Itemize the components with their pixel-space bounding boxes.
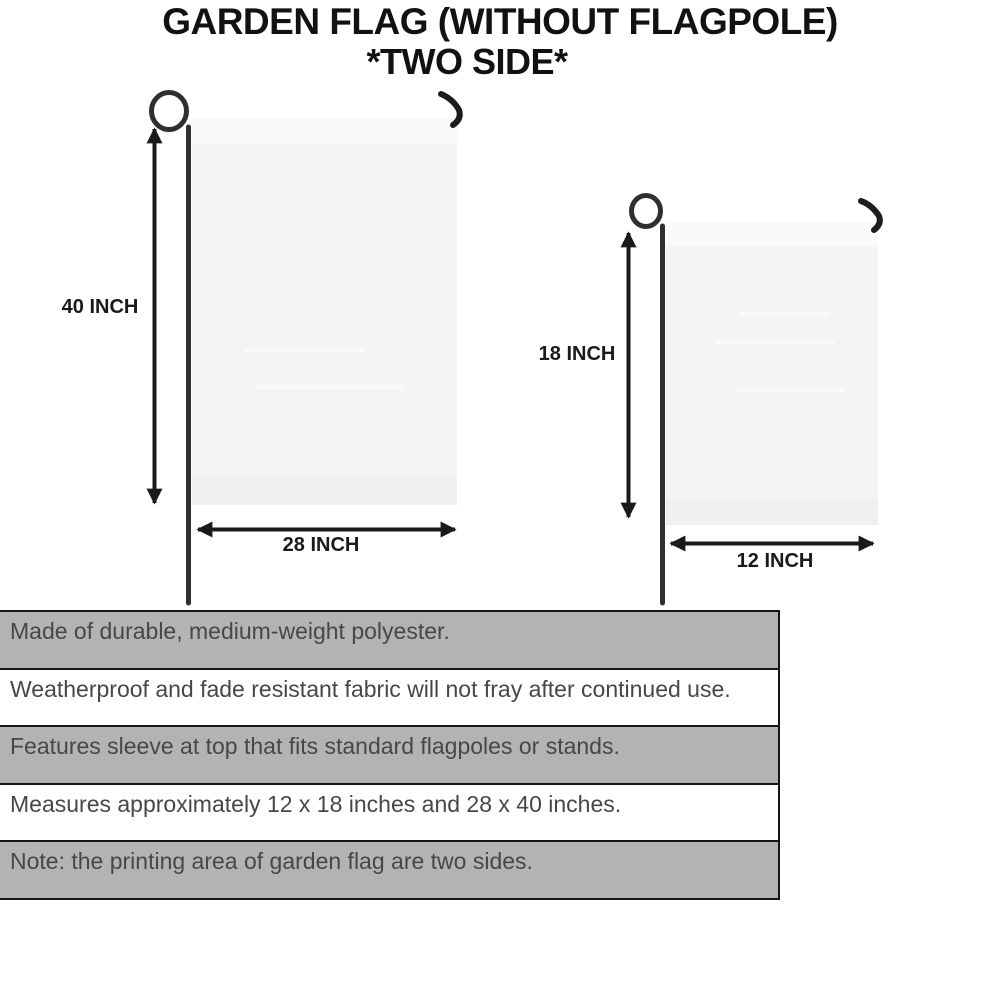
fabric-crease bbox=[245, 348, 365, 352]
fabric-crease bbox=[255, 385, 405, 389]
feature-list: Made of durable, medium-weight polyester… bbox=[0, 610, 780, 900]
large-flag-pole-loop bbox=[152, 93, 187, 130]
small-flag-width-label: 12 INCH bbox=[705, 550, 845, 573]
feature-row: Made of durable, medium-weight polyester… bbox=[0, 612, 778, 668]
small-flag-fabric bbox=[666, 222, 878, 525]
large-flag-bottom-hem bbox=[192, 477, 457, 505]
large-flag-width-label: 28 INCH bbox=[251, 534, 391, 557]
large-flag-fabric bbox=[192, 118, 457, 505]
large-flag-height-label: 40 INCH bbox=[30, 296, 170, 319]
fabric-crease bbox=[735, 388, 845, 392]
large-flag-sleeve bbox=[192, 118, 457, 144]
feature-row: Measures approximately 12 x 18 inches an… bbox=[0, 783, 778, 841]
fabric-crease bbox=[715, 340, 835, 344]
fabric-crease bbox=[740, 312, 830, 316]
large-flag bbox=[152, 93, 460, 604]
feature-row: Note: the printing area of garden flag a… bbox=[0, 840, 778, 898]
small-flag bbox=[629, 196, 880, 604]
feature-row: Features sleeve at top that fits standar… bbox=[0, 725, 778, 783]
small-flag-height-label: 18 INCH bbox=[507, 343, 647, 366]
small-flag-sleeve bbox=[666, 222, 878, 246]
small-flag-pole-loop bbox=[632, 196, 661, 227]
small-flag-bottom-hem bbox=[666, 498, 878, 525]
product-infographic: GARDEN FLAG (WITHOUT FLAGPOLE) *TWO SIDE… bbox=[0, 0, 1000, 1000]
feature-row: Weatherproof and fade resistant fabric w… bbox=[0, 668, 778, 726]
